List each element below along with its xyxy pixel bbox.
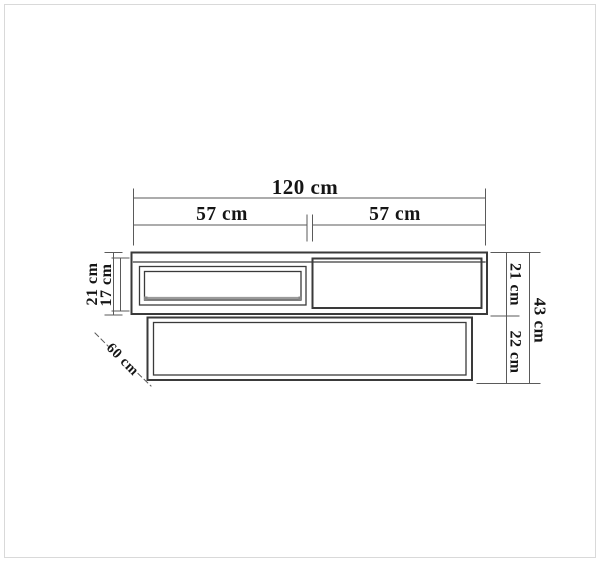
dim-label-depth: 60 cm <box>103 340 142 379</box>
dim-label-left-section: 57 cm <box>196 204 248 225</box>
dim-label-right-lower-height: 22 cm <box>507 331 524 374</box>
depth-leader-dash-upper <box>95 333 108 346</box>
drawer-front-panel <box>313 259 482 309</box>
shelf-rail-end-right <box>299 297 303 301</box>
dimension-lines <box>95 189 540 386</box>
dim-label-left-opening-height: 17 cm <box>98 263 115 306</box>
drawing-canvas: 120 cm 57 cm 57 cm 21 cm 17 cm 21 cm 22 … <box>0 0 600 562</box>
base-unit-outline <box>148 318 473 381</box>
open-shelf-outer-frame <box>140 267 307 306</box>
dim-label-right-section: 57 cm <box>369 204 421 225</box>
furniture-dimension-diagram: 120 cm 57 cm 57 cm 21 cm 17 cm 21 cm 22 … <box>0 0 600 562</box>
dim-label-right-upper-height: 21 cm <box>507 263 524 306</box>
open-shelf-inner-frame <box>145 272 302 301</box>
dim-label-total-width: 120 cm <box>272 175 339 199</box>
shelf-rail-end-left <box>144 297 148 301</box>
dim-label-right-total-height: 43 cm <box>530 298 549 343</box>
base-unit-inner-frame <box>154 323 467 376</box>
furniture-outlines <box>132 253 488 381</box>
